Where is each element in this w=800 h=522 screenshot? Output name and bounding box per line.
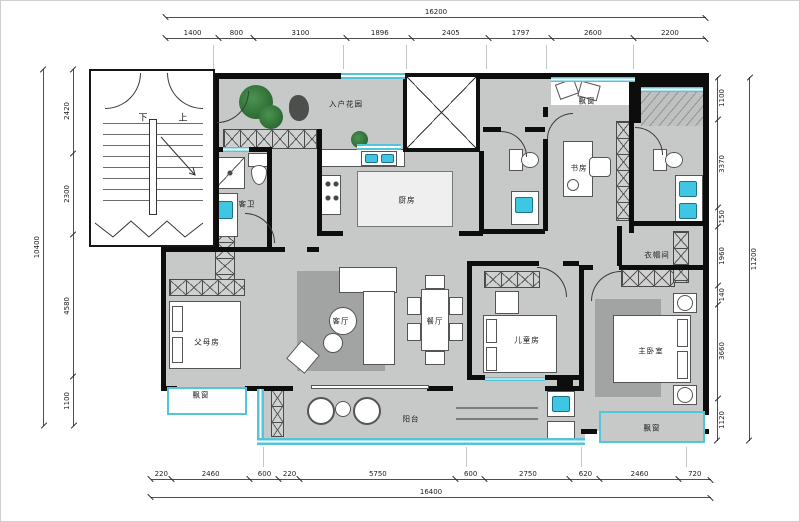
dimension-segment: 600 — [456, 469, 486, 480]
room-label-guest-bath: 客卫 — [239, 199, 256, 210]
room-label-bay-window: 飘窗 — [193, 390, 210, 401]
dimension-value: 16200 — [424, 9, 448, 16]
dimension-value: 620 — [578, 471, 593, 478]
cloakroom-wardrobe-hatch — [621, 269, 675, 287]
dimension-value: 800 — [229, 30, 244, 37]
window — [485, 377, 545, 381]
balcony-chair — [353, 397, 381, 425]
sofa-back-section — [339, 267, 397, 293]
dimension-row-top-overall: 16200 — [166, 7, 706, 18]
balcony-window — [257, 438, 585, 445]
dimension-segment: 620 — [570, 469, 600, 480]
dimension-segment: 2300 — [63, 153, 74, 234]
dimension-value: 16400 — [419, 489, 443, 496]
children-desk — [495, 291, 519, 314]
dining-chair — [407, 297, 421, 315]
dimension-segment: 4580 — [63, 235, 74, 377]
dimension-value: 600 — [257, 471, 272, 478]
room-label-cloakroom: 衣帽间 — [644, 250, 670, 261]
dimension-segment: 800 — [219, 28, 253, 39]
study-chair — [589, 157, 611, 177]
dimension-value: 1797 — [511, 30, 531, 37]
room-label-balcony: 阳台 — [403, 414, 420, 425]
window — [357, 144, 401, 150]
dimension-segment: 5750 — [300, 469, 456, 480]
dimension-segment: 16200 — [166, 7, 706, 18]
dimension-value: 3370 — [719, 154, 726, 174]
room-label-master-bedroom: 主卧室 — [638, 346, 664, 357]
room-label-entry-garden: 入户花园 — [329, 99, 363, 110]
dimension-value: 2300 — [64, 184, 71, 204]
dimension-value: 4580 — [64, 296, 71, 316]
dimension-value: 1100 — [64, 391, 71, 411]
side-table — [323, 333, 343, 353]
dimension-segment: 3100 — [254, 28, 348, 39]
dimension-segment: 3370 — [717, 119, 728, 207]
dimension-value: 600 — [463, 471, 478, 478]
stairwell: 下 上 — [89, 69, 215, 247]
balcony-cabinet-hatch — [271, 389, 284, 437]
dining-chair — [425, 351, 445, 365]
dimension-value: 1400 — [183, 30, 203, 37]
stove — [321, 175, 341, 215]
dimension-value: 11200 — [751, 247, 758, 271]
dining-chair — [407, 323, 421, 341]
pillow — [486, 319, 497, 343]
balcony-window — [257, 389, 264, 443]
cloakroom-side-hatch — [673, 231, 689, 283]
sliding-door — [311, 385, 429, 389]
room-label-bay-window: 飘窗 — [579, 96, 596, 107]
sink-basin — [515, 197, 533, 213]
dining-chair — [449, 297, 463, 315]
dimension-value: 2600 — [583, 30, 603, 37]
dimension-segment: 2460 — [600, 469, 678, 480]
drying-rack — [456, 407, 538, 409]
entry-cabinet-hatch — [223, 129, 317, 149]
dimension-segment: 1797 — [489, 28, 552, 39]
dimension-value: 1120 — [719, 410, 726, 430]
dining-chair — [449, 323, 463, 341]
window — [641, 87, 703, 92]
dimension-segment: 2460 — [172, 469, 250, 480]
dimension-segment: 2750 — [485, 469, 570, 480]
pillow — [486, 347, 497, 371]
balcony-table — [335, 401, 351, 417]
dimension-column-left-segments: 2420230045801100 — [63, 69, 74, 426]
dimension-segment: 1100 — [63, 377, 74, 426]
room-label-bay-window: 飘窗 — [644, 423, 661, 434]
parents-wardrobe-hatch — [169, 279, 245, 296]
dimension-column-left-overall: 10400 — [33, 69, 44, 426]
dimension-segment: 1100 — [717, 77, 728, 119]
dimension-segment: 2200 — [634, 28, 706, 39]
dimension-row-bottom-segments: 2202460600220575060027506202460720 — [151, 469, 711, 480]
nightstand-lamp — [677, 387, 693, 403]
plant-icon — [259, 105, 283, 129]
dimension-segment: 10400 — [33, 69, 44, 426]
elevator-shaft — [403, 73, 480, 152]
room-label-children-room: 儿童房 — [514, 335, 540, 346]
balcony-chair — [307, 397, 335, 425]
dimension-segment: 16400 — [151, 487, 711, 498]
dimension-segment: 1960 — [717, 226, 728, 286]
dimension-value: 2460 — [630, 471, 650, 478]
washer-drum — [552, 396, 570, 412]
dimension-value: 2405 — [441, 30, 461, 37]
dimension-segment: 720 — [679, 469, 711, 480]
dimension-value: 2750 — [518, 471, 538, 478]
pillow — [172, 306, 183, 332]
dimension-column-right-segments: 11003370150196014036601120 — [717, 77, 728, 441]
dimension-segment: 600 — [250, 469, 280, 480]
dimension-value: 1896 — [370, 30, 390, 37]
pillow — [677, 319, 688, 347]
dimension-value: 3100 — [291, 30, 311, 37]
nightstand-lamp — [677, 295, 693, 311]
study-lamp — [567, 179, 579, 191]
drying-rack — [456, 418, 538, 420]
dining-chair — [425, 275, 445, 289]
window — [341, 73, 405, 79]
floorplan-canvas: 下 上 入户花园 厨房 客卫 书房 衣帽间 父母房 客厅 餐厅 儿童房 主卧室 … — [0, 0, 800, 522]
dimension-column-right-overall: 11200 — [749, 77, 760, 441]
toilet-bowl — [665, 152, 683, 168]
room-label-study: 书房 — [571, 163, 588, 174]
dimension-value: 2420 — [64, 101, 71, 121]
shower — [215, 157, 245, 189]
dimension-row-bottom-overall: 16400 — [151, 487, 711, 498]
dimension-row-top-segments: 1400800310018962405179726002200 — [166, 28, 706, 39]
dimension-segment: 2420 — [63, 69, 74, 153]
room-label-dining-room: 餐厅 — [427, 316, 444, 327]
dimension-segment: 1896 — [347, 28, 412, 39]
dimension-value: 2200 — [660, 30, 680, 37]
room-label-parents-room: 父母房 — [194, 337, 220, 348]
dimension-value: 1960 — [719, 246, 726, 266]
shrub-icon — [289, 95, 309, 121]
dimension-segment: 1120 — [717, 398, 728, 441]
sink-basin — [679, 181, 697, 197]
dimension-segment: 2600 — [552, 28, 634, 39]
window — [223, 147, 249, 152]
dimension-segment: 220 — [279, 469, 300, 480]
dimension-segment: 11200 — [749, 77, 760, 441]
dimension-segment: 2405 — [412, 28, 489, 39]
dimension-value: 720 — [687, 471, 702, 478]
pillow — [172, 337, 183, 363]
window — [551, 77, 635, 82]
stair-down-label: 下 — [138, 111, 147, 124]
dimension-value: 220 — [154, 471, 169, 478]
dimension-value: 1100 — [719, 88, 726, 108]
dimension-segment: 3660 — [717, 304, 728, 398]
pillow — [677, 351, 688, 379]
stair-up-label: 上 — [178, 111, 187, 124]
room-label-kitchen: 厨房 — [399, 195, 416, 206]
master-shower-floor — [641, 92, 703, 126]
sink-basin — [679, 203, 697, 219]
dimension-value: 2460 — [201, 471, 221, 478]
children-wardrobe-hatch — [484, 271, 540, 288]
dimension-value: 220 — [282, 471, 297, 478]
dimension-segment: 1400 — [166, 28, 219, 39]
sofa-side-section — [363, 291, 395, 365]
dimension-value: 3660 — [719, 341, 726, 361]
sink-basin — [365, 154, 378, 163]
dimension-value: 10400 — [34, 235, 41, 259]
room-label-living-room: 客厅 — [333, 316, 350, 327]
dimension-value: 5750 — [368, 471, 388, 478]
sink-basin — [381, 154, 394, 163]
